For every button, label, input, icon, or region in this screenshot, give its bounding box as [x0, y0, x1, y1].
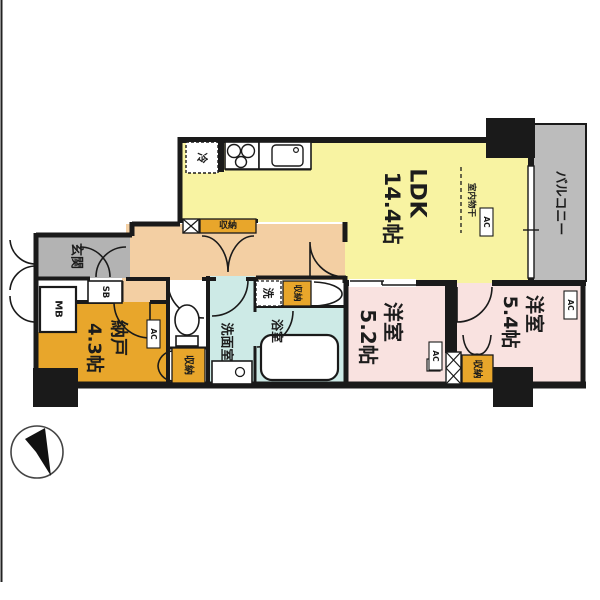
indoor-drying-label: 室内物干: [466, 183, 477, 218]
north-arrow-icon: [25, 428, 51, 476]
pillar-bottom-left: [33, 368, 78, 407]
ac-label-bedroom-54: AC: [566, 299, 575, 311]
storage-room-area: 4.3帖: [84, 323, 106, 373]
refrigerator-label: 冷: [196, 153, 210, 164]
floor-plan-drawing: LDK 14.4帖 バルコニー 洋室 5.2帖 洋室 5.4帖 納戸 4.3帖 …: [0, 0, 600, 600]
ac-label-bedroom-52: AC: [431, 350, 440, 362]
burner-icon: [242, 145, 255, 158]
bedroom-52-label: 洋室: [381, 302, 405, 342]
bedroom-54-area: 5.4帖: [499, 296, 522, 349]
closet-label-storage-room: 収納: [183, 355, 196, 375]
faucet-icon: [294, 148, 299, 153]
sliding-door: [349, 279, 416, 287]
bedroom-52-area: 5.2帖: [356, 309, 380, 364]
bedroom-54-label: 洋室: [523, 295, 546, 333]
toilet-tank: [176, 336, 198, 346]
toilet-icon: [175, 305, 199, 335]
storage-room-label: 納戸: [108, 320, 130, 356]
ldk-label: LDK: [405, 168, 430, 218]
ac-label-storage-room: AC: [149, 328, 158, 340]
washbasin-bowl-icon: [236, 368, 245, 377]
meter-box-label: MB: [53, 300, 64, 318]
closet-label-hall: 収納: [292, 284, 303, 301]
balcony-label: バルコニー: [553, 171, 568, 236]
burner-icon: [236, 157, 247, 168]
burner-icon: [228, 145, 241, 158]
washroom-label: 洗面室: [219, 322, 235, 361]
corridor-extension: [122, 278, 168, 303]
washbasin: [212, 361, 252, 384]
north-compass: [11, 426, 63, 478]
entrance-label: 玄関: [69, 243, 85, 269]
washer-label: 洗: [262, 288, 276, 299]
pillar-top-right: [486, 118, 535, 158]
closet-label-bedroom-54: 収納: [472, 359, 484, 378]
floor-plan-canvas: LDK 14.4帖 バルコニー 洋室 5.2帖 洋室 5.4帖 納戸 4.3帖 …: [0, 0, 600, 600]
closet-label-kitchen: 収納: [219, 219, 237, 231]
shoe-box-label: SB: [100, 286, 110, 299]
ac-label-ldk: AC: [482, 216, 491, 228]
pillar-bottom-right: [493, 367, 533, 407]
ldk-area: 14.4帖: [380, 172, 404, 245]
bathroom-label: 浴室: [270, 319, 285, 343]
